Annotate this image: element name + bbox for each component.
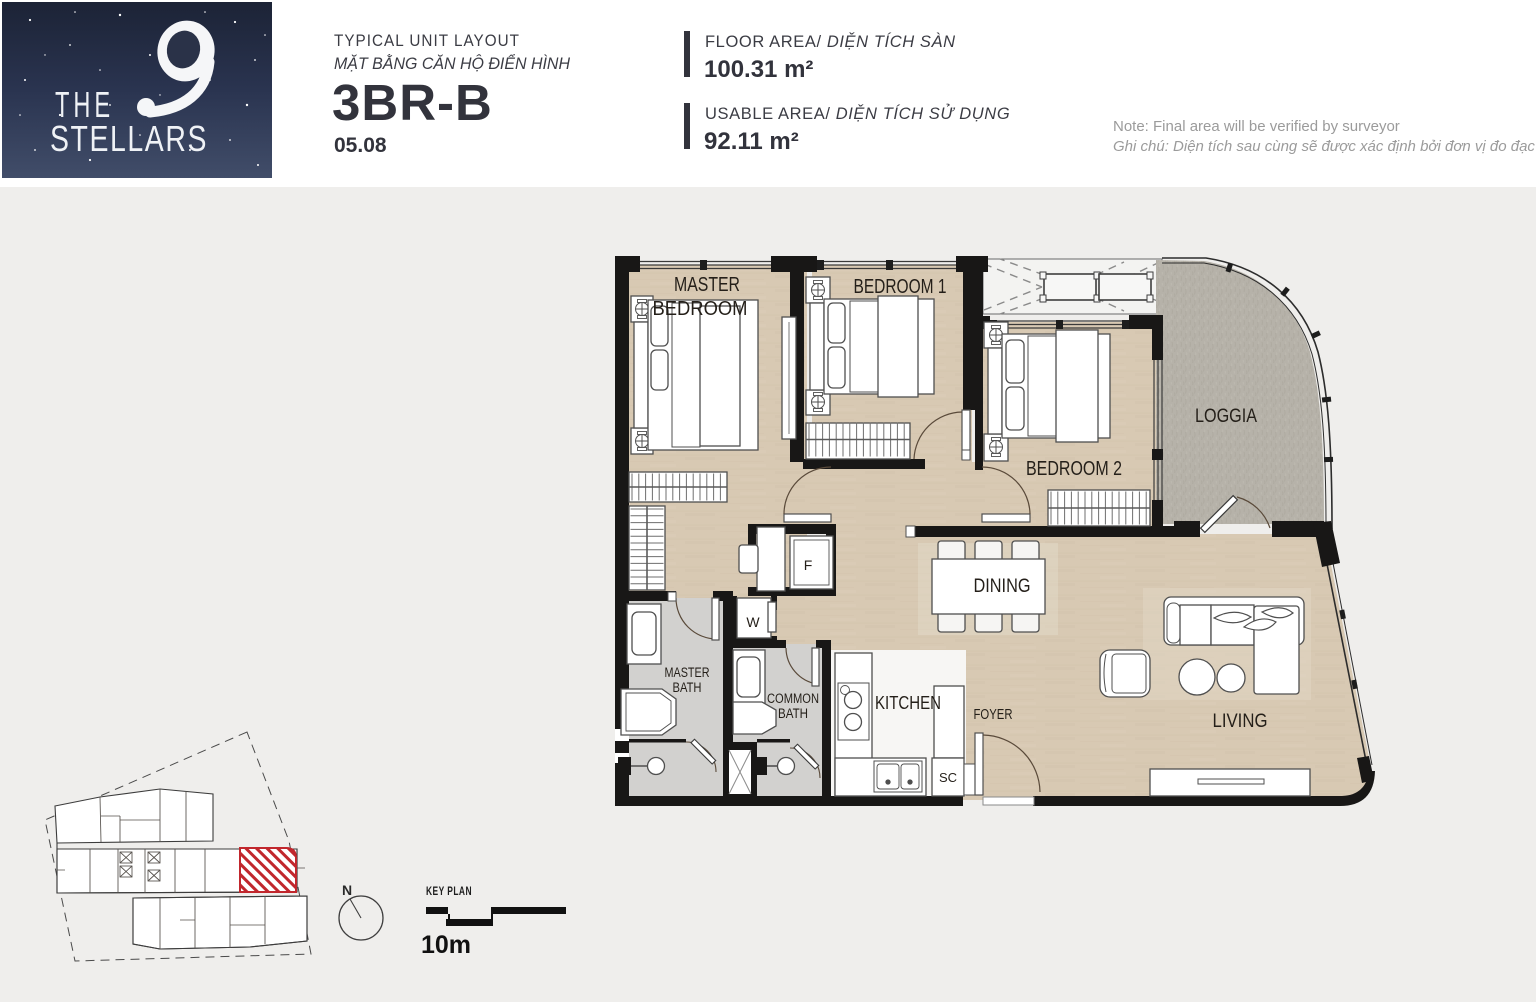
svg-text:KEY PLAN: KEY PLAN	[426, 886, 472, 898]
svg-text:BEDROOM 2: BEDROOM 2	[1026, 458, 1122, 480]
svg-text:W: W	[746, 614, 760, 630]
svg-text:100.31 m²: 100.31 m²	[704, 56, 813, 83]
svg-text:DINING: DINING	[974, 576, 1031, 597]
svg-text:LIVING: LIVING	[1213, 711, 1268, 732]
svg-text:LOGGIA: LOGGIA	[1195, 406, 1257, 427]
svg-text:BEDROOM 1: BEDROOM 1	[854, 276, 947, 298]
svg-text:3BR-B: 3BR-B	[332, 74, 493, 131]
svg-text:BATH: BATH	[778, 706, 808, 721]
svg-text:F: F	[804, 557, 813, 573]
svg-text:SC: SC	[939, 770, 957, 785]
svg-text:USABLE AREA/ DIỆN TÍCH SỬ DỤNG: USABLE AREA/ DIỆN TÍCH SỬ DỤNG	[705, 104, 1010, 123]
svg-text:MẶT BẰNG CĂN HỘ ĐIỂN HÌNH: MẶT BẰNG CĂN HỘ ĐIỂN HÌNH	[334, 54, 570, 73]
svg-text:STELLARS: STELLARS	[50, 118, 208, 159]
svg-text:N: N	[342, 882, 352, 898]
svg-text:BEDROOM: BEDROOM	[653, 298, 748, 320]
svg-text:KITCHEN: KITCHEN	[875, 693, 941, 713]
svg-text:COMMON: COMMON	[767, 691, 819, 706]
svg-text:MASTER: MASTER	[665, 665, 710, 680]
svg-text:MASTER: MASTER	[674, 274, 740, 296]
svg-text:Ghi chú: Diện tích sau cùng sẽ: Ghi chú: Diện tích sau cùng sẽ được xác …	[1113, 138, 1535, 155]
svg-text:BATH: BATH	[673, 680, 702, 695]
svg-text:92.11 m²: 92.11 m²	[704, 128, 799, 155]
svg-text:10m: 10m	[421, 931, 471, 959]
svg-text:FLOOR AREA/ DIỆN TÍCH SÀN: FLOOR AREA/ DIỆN TÍCH SÀN	[705, 32, 956, 51]
svg-text:05.08: 05.08	[334, 134, 387, 157]
svg-text:TYPICAL UNIT LAYOUT: TYPICAL UNIT LAYOUT	[334, 32, 520, 50]
svg-text:FOYER: FOYER	[974, 706, 1013, 723]
svg-text:Note: Final area will be verif: Note: Final area will be verified by sur…	[1113, 118, 1400, 135]
